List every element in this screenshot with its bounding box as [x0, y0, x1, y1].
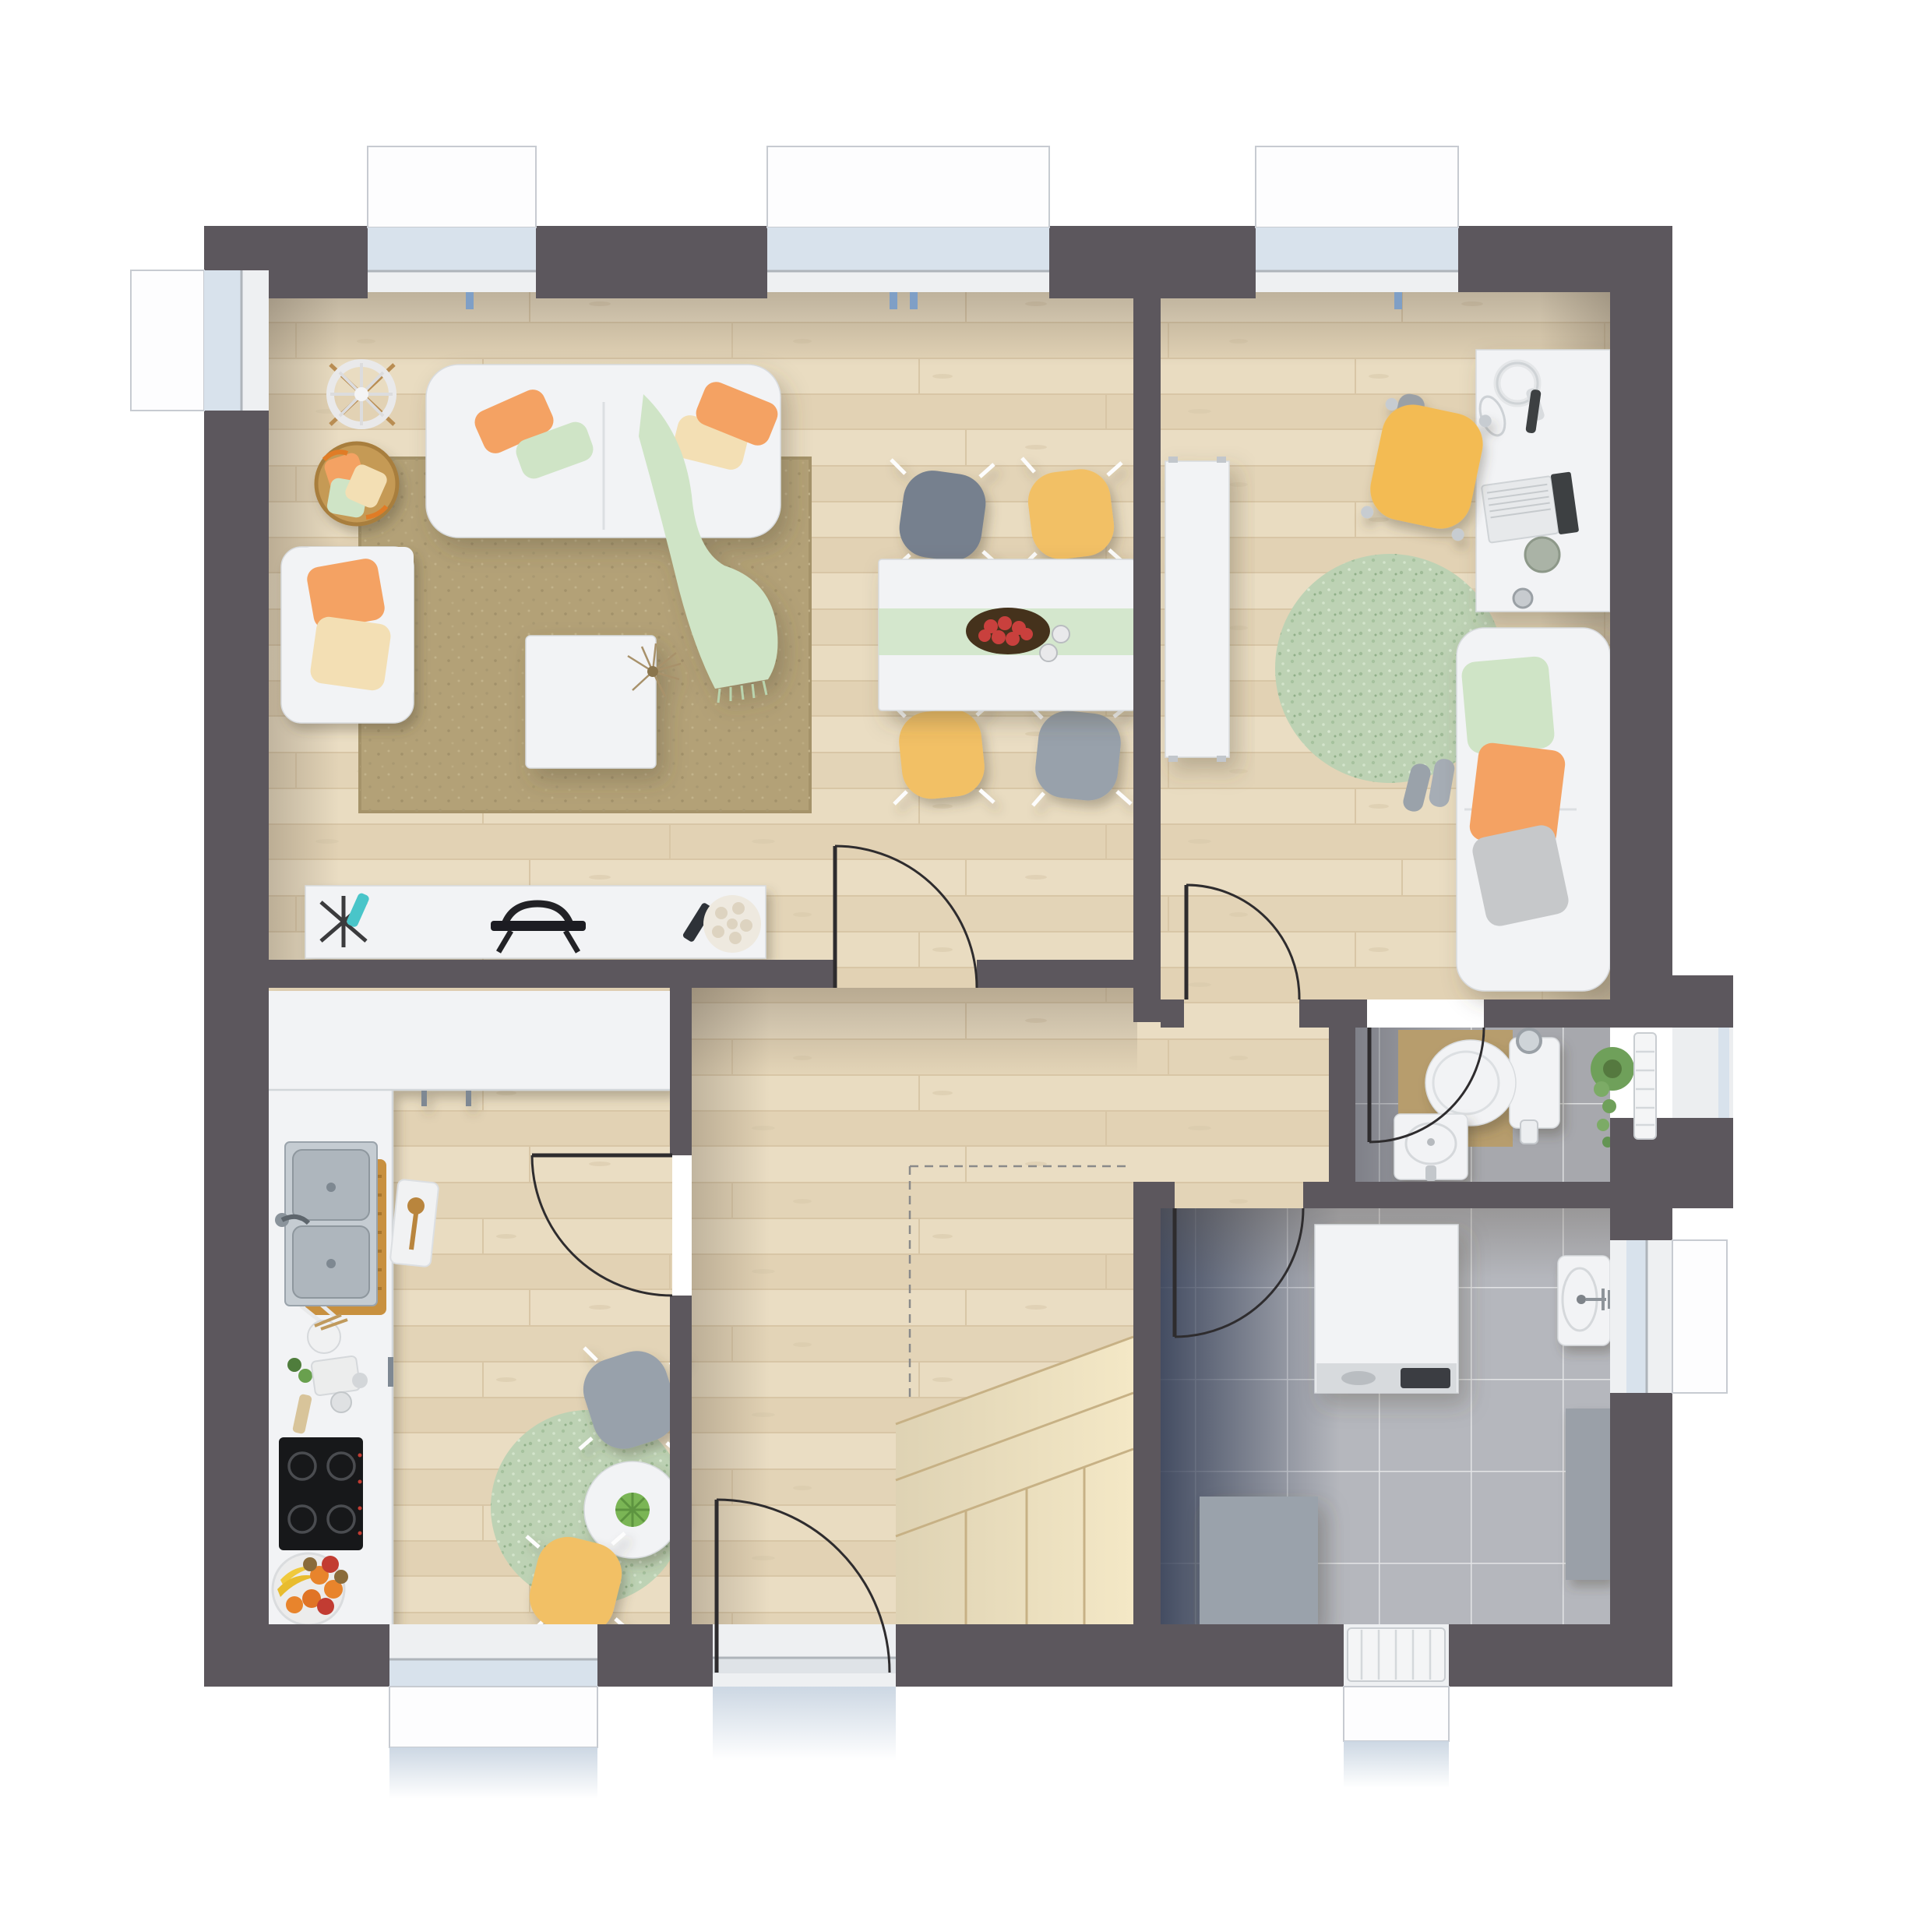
induction-cooktop [279, 1437, 363, 1550]
dining-table [879, 559, 1135, 710]
window-living-left [131, 270, 269, 411]
desk-plant [1525, 538, 1559, 572]
bump-wall-top [1610, 975, 1733, 1028]
window-utility-right [1610, 1240, 1727, 1393]
window-bedroom-top [1256, 146, 1458, 309]
wall-cabinet [1566, 1408, 1610, 1580]
window-handle [910, 292, 918, 309]
cutting-board [389, 1179, 439, 1267]
niche-window-glass [1718, 1028, 1729, 1118]
table-plant [615, 1493, 650, 1527]
wall-kitchen-right-upper [670, 988, 692, 1155]
wall-stairs-utility [1133, 1182, 1161, 1624]
wall-living-south [269, 960, 835, 988]
pillow-basket [316, 443, 397, 524]
front-door-opening [713, 1624, 896, 1761]
cable-grommet [1513, 589, 1532, 608]
wall-bedroom-south [1484, 999, 1610, 1028]
washing-machine [1315, 1225, 1458, 1393]
window-radiator [1348, 1628, 1445, 1681]
window-handle [1394, 292, 1402, 309]
bump-wall-bottom [1610, 1118, 1733, 1208]
window-utility-bottom [1344, 1624, 1449, 1788]
wheel-decor [330, 363, 394, 425]
window-handle [466, 292, 474, 309]
desk [1475, 350, 1610, 612]
tv-sideboard [305, 886, 766, 958]
wall-bathroom-left [1329, 999, 1355, 1208]
wall-living-bedroom [1133, 292, 1161, 1022]
candle [1040, 644, 1057, 661]
window-handle [890, 292, 897, 309]
two-seat-sofa [1457, 628, 1610, 991]
armchair [281, 547, 414, 723]
wall-dining-south [977, 960, 1133, 988]
double-steel-sink [275, 1142, 377, 1306]
floor-plan-image [0, 0, 1931, 1932]
storage-chest [1200, 1497, 1318, 1624]
wardrobe [1165, 457, 1229, 762]
pillow-cream [308, 615, 392, 693]
pillow-mint [1461, 655, 1556, 754]
round-table [584, 1461, 681, 1558]
window-kitchen-bottom [389, 1624, 597, 1799]
round-mirror [1517, 1029, 1541, 1052]
niche-radiator [1634, 1033, 1656, 1139]
hall-nook-floor [1133, 999, 1355, 1208]
wall-utility-top [1303, 1182, 1610, 1208]
window-dining-top [767, 146, 1049, 309]
toilet-paper [1520, 1120, 1538, 1144]
utility-sink [1558, 1256, 1610, 1345]
candle [1052, 626, 1069, 643]
wall-kitchen-right-lower [670, 1296, 692, 1624]
floor-plan-svg [0, 0, 1931, 1932]
window-living-top [368, 146, 536, 309]
fruit-bowl [966, 608, 1050, 654]
